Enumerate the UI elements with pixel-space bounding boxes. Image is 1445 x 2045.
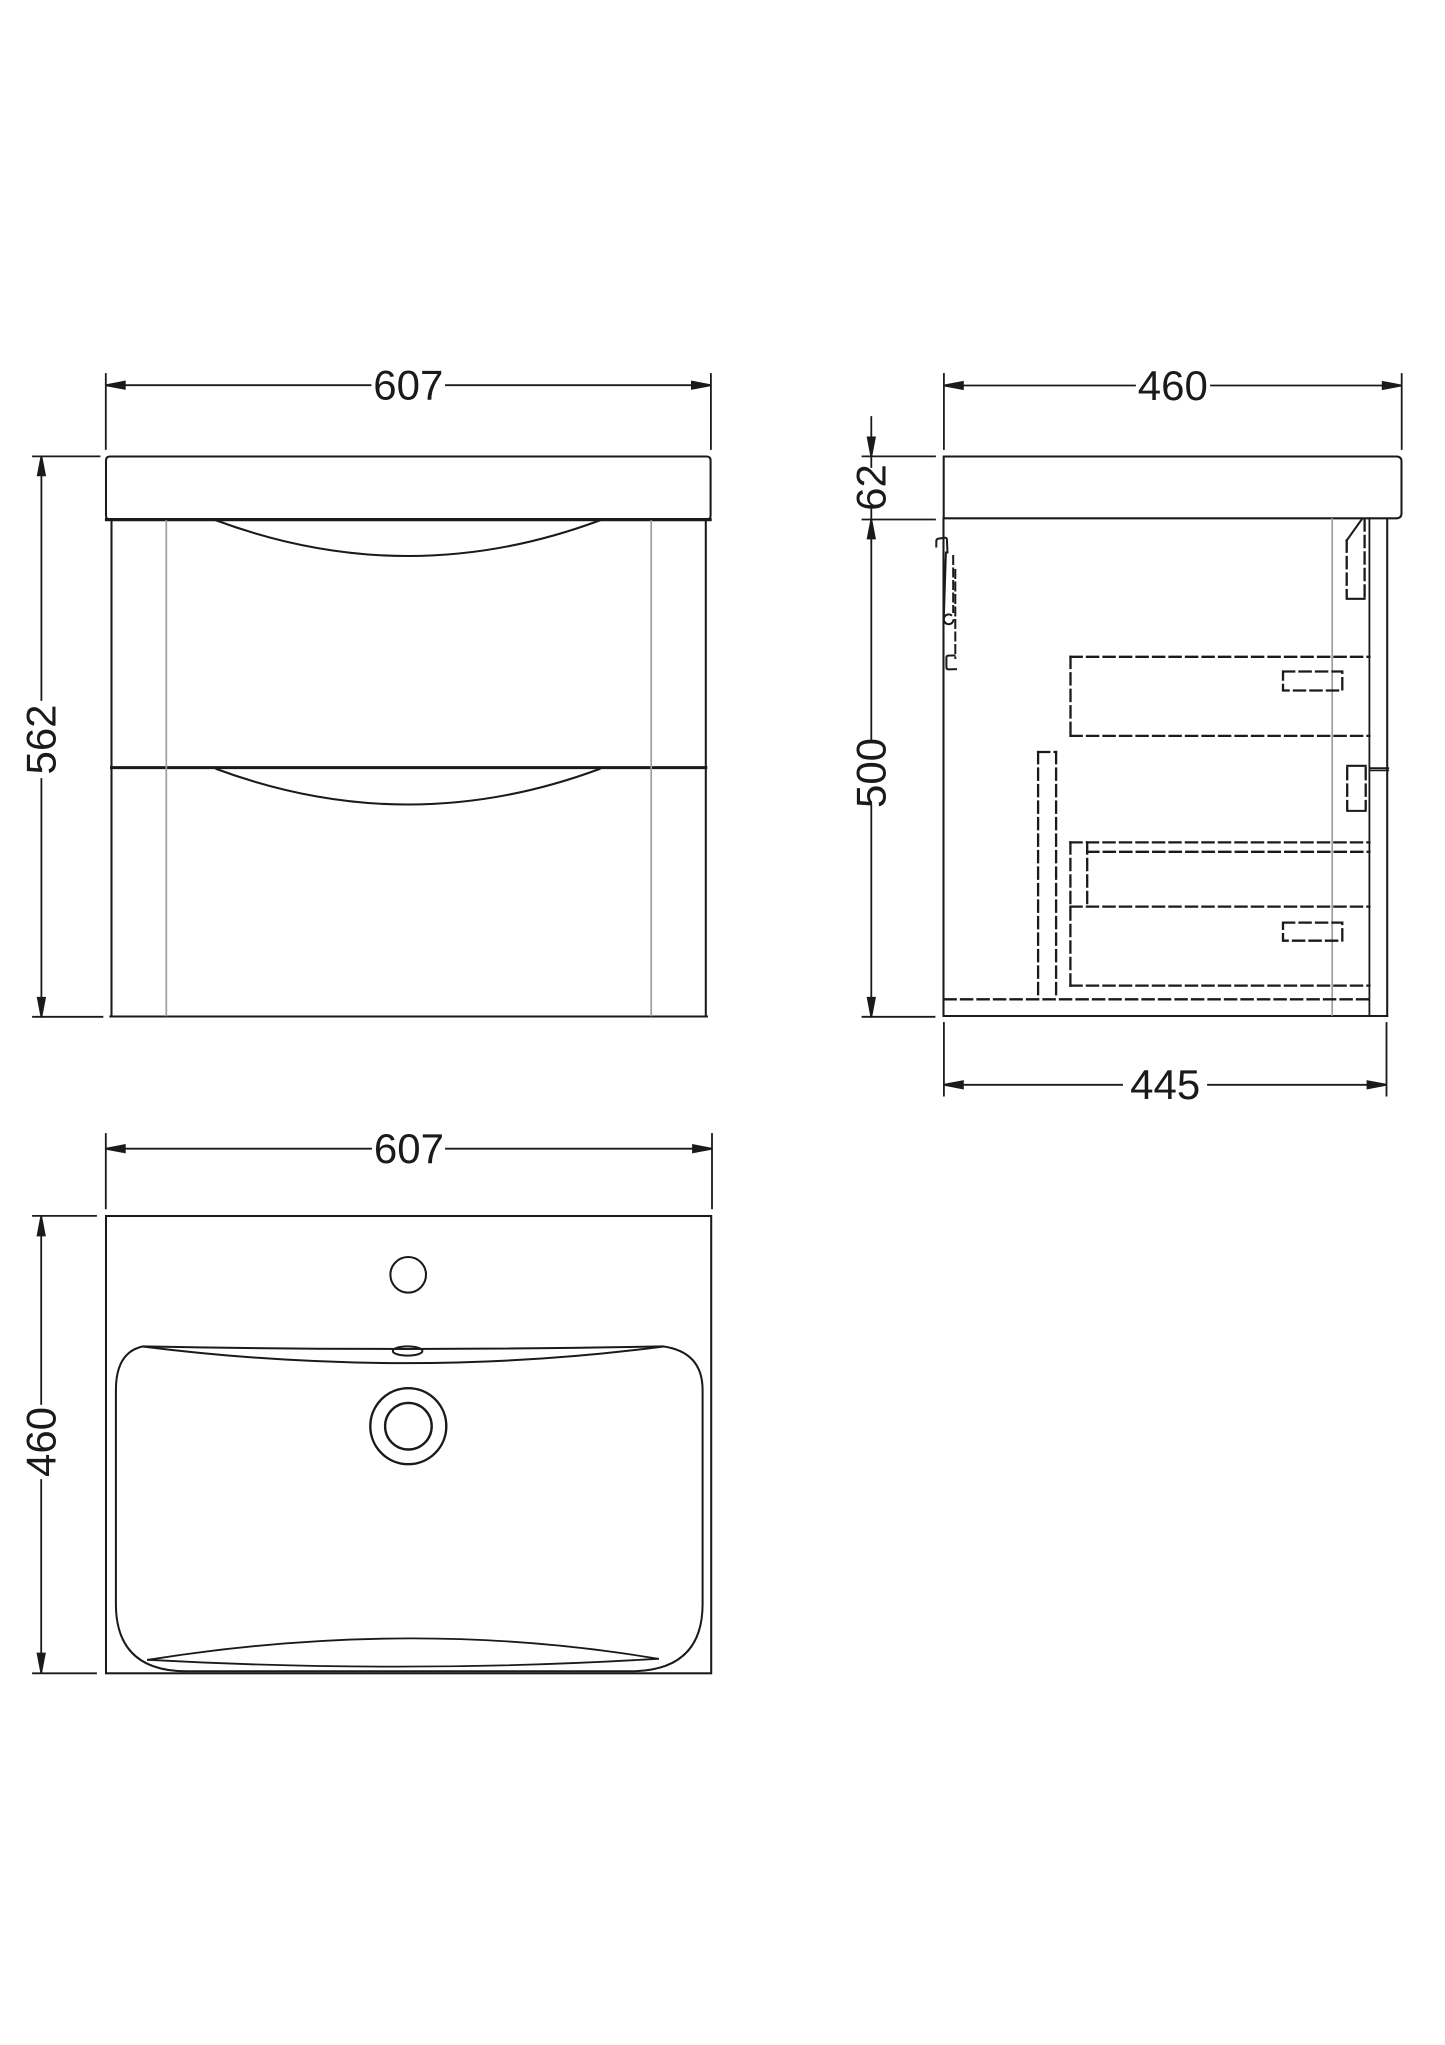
svg-text:607: 607 (373, 362, 443, 409)
svg-text:445: 445 (1130, 1061, 1200, 1108)
svg-text:62: 62 (848, 464, 895, 511)
svg-text:500: 500 (848, 738, 895, 808)
svg-text:460: 460 (1138, 362, 1208, 409)
svg-text:607: 607 (374, 1125, 444, 1172)
svg-text:562: 562 (18, 704, 65, 774)
svg-text:460: 460 (17, 1407, 64, 1477)
